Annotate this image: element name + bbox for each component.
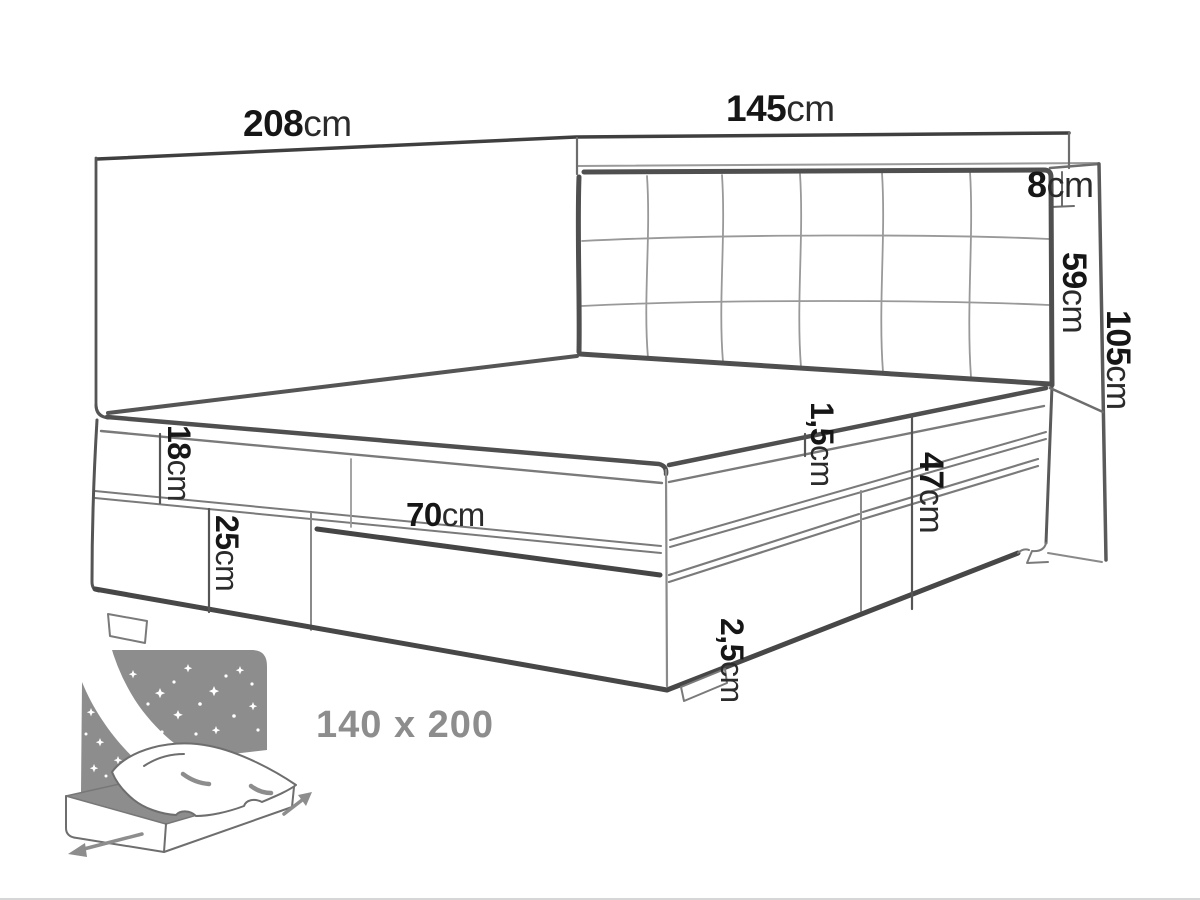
right-wall-panel	[577, 163, 1106, 563]
bed-size-label: 140 x 200	[316, 706, 494, 744]
dim-topper-gap: 1,5cm	[806, 402, 838, 487]
dim-headboard-width: 145cm	[726, 90, 835, 127]
dim-drawer-width: 70cm	[406, 498, 485, 531]
dim-mattress-height: 18cm	[163, 425, 195, 501]
headboard	[578, 170, 1052, 385]
dim-side-height: 47cm	[914, 452, 948, 533]
diagram-page: 208cm 145cm 8cm 59cm 105cm 18cm 25cm 70c…	[0, 0, 1200, 900]
dim-wall-panel-width: 208cm	[243, 105, 352, 142]
left-foot	[108, 614, 147, 643]
dim-foot-height: 2,5cm	[716, 618, 748, 703]
dim-headboard-height: 59cm	[1057, 252, 1091, 333]
dim-panel-total-height: 105cm	[1101, 310, 1135, 410]
dim-headboard-depth: 8cm	[1027, 167, 1094, 203]
left-wall-panel	[96, 158, 108, 418]
starry-bed-icon	[66, 644, 312, 857]
dim-base-height: 25cm	[211, 515, 243, 591]
